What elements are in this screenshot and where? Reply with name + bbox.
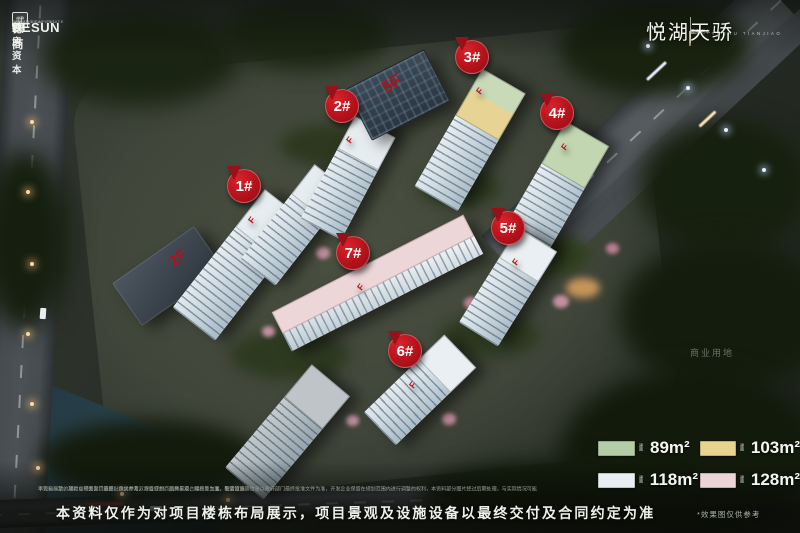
site-label: 商业用地 xyxy=(690,346,734,359)
legend-prefix: 建面 xyxy=(740,444,744,451)
project-title: 悦湖天骄 xyxy=(646,16,734,45)
legend-item-89: 建面89m² xyxy=(598,438,698,458)
legend-item-103: 建面103m² xyxy=(700,438,800,458)
legend: 建面89m²建面103m²建面118m²建面128m² xyxy=(598,438,800,490)
legend-area-value: 89m² xyxy=(650,438,690,458)
legend-swatch xyxy=(598,441,635,456)
roof-floor-label-5F: 5F xyxy=(378,70,406,98)
legend-prefix: 建面 xyxy=(639,476,643,483)
render-note: *效果图仅供参考 xyxy=(697,509,760,520)
legend-prefix: 建面 xyxy=(740,476,744,483)
legend-prefix: 建面 xyxy=(639,444,643,451)
legend-swatch xyxy=(598,473,635,488)
legend-area-value: 128m² xyxy=(751,470,800,490)
legend-item-118: 建面118m² xyxy=(598,470,698,490)
poster: 2F5F 商业用地 1#F2#F3#F4#F5#F6#F7#F 武 武房资本 W… xyxy=(0,0,800,533)
roof-floor-label-2F: 2F xyxy=(166,246,190,270)
legend-item-128: 建面128m² xyxy=(700,470,800,490)
project-subtitle: YUEHU TIANJIAO xyxy=(712,32,783,36)
legend-area-value: 118m² xyxy=(650,470,698,490)
legend-swatch xyxy=(700,473,736,488)
desun-logo-sub: DESUN REAL ESTATE xyxy=(12,20,64,24)
desun-logo-cn: 德商 xyxy=(12,20,24,52)
main-disclaimer: 本资料仅作为对项目楼栋布局展示，项目景观及设施设备以最终交付及合同约定为准 xyxy=(56,503,655,523)
legend-area-value: 103m² xyxy=(751,438,800,458)
legend-swatch xyxy=(700,441,736,456)
